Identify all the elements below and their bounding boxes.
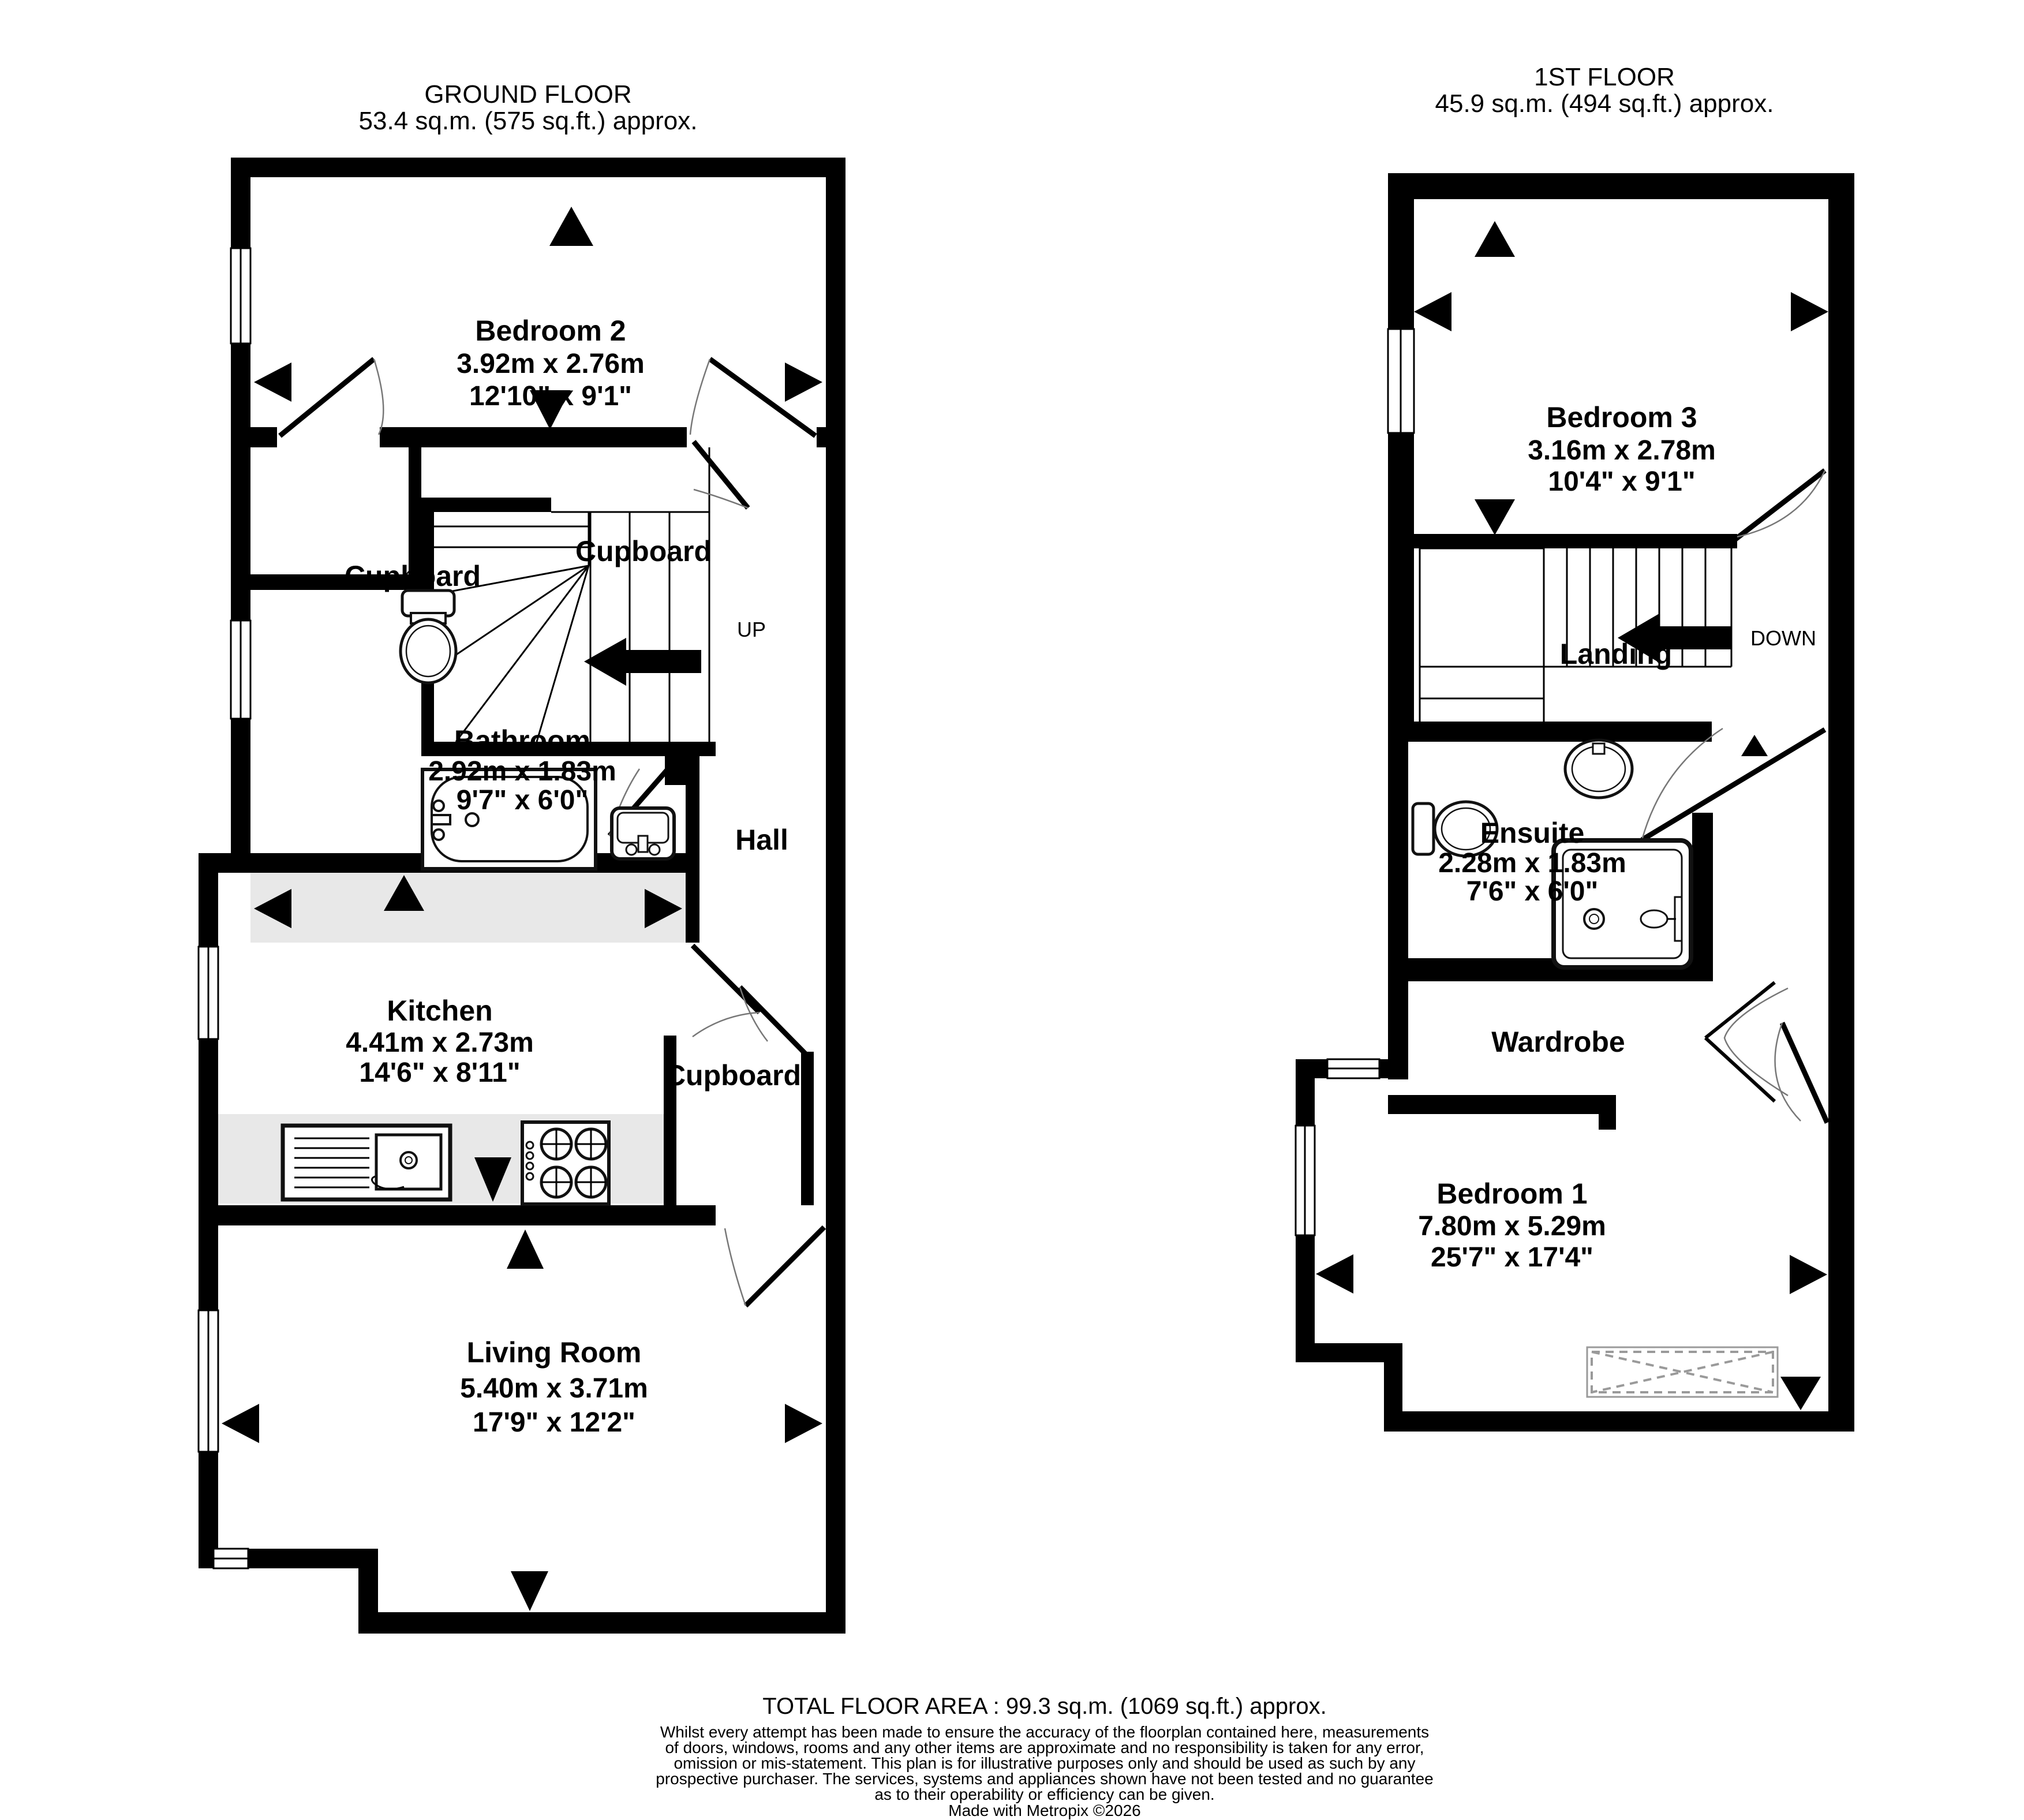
living-room-label: Living Room — [467, 1336, 642, 1369]
dimension-arrow-up — [549, 207, 593, 246]
ground-stairs — [434, 447, 709, 742]
dimension-arrow-right — [785, 1404, 822, 1443]
sink-tap — [1593, 743, 1604, 754]
wall-segment — [1388, 1095, 1599, 1114]
living-room-imperial: 17'9" x 12'2" — [473, 1407, 635, 1438]
door-leaf — [693, 945, 760, 1012]
bedroom3-label: Bedroom 3 — [1546, 401, 1697, 433]
understairs-box — [1420, 667, 1544, 698]
dimension-arrow-left — [1316, 1254, 1353, 1294]
cupboard-left-label: Cupboard — [345, 560, 481, 592]
door-leaf — [1642, 730, 1825, 840]
ensuite-label: Ensuite — [1480, 817, 1585, 849]
bedroom3-imperial: 10'4" x 9'1" — [1548, 466, 1695, 497]
toilet-cistern — [1413, 804, 1434, 854]
wardrobe-door-chevron — [1705, 982, 1775, 1038]
bedroom1-imperial: 25'7" x 17'4" — [1431, 1242, 1593, 1273]
bedroom3-metric: 3.16m x 2.78m — [1528, 435, 1716, 466]
dimension-arrow-down — [1780, 1377, 1821, 1410]
basin-tap-handle — [649, 844, 660, 855]
wall-segment — [231, 427, 277, 447]
bathroom-metric: 2.92m x 1.83m — [428, 756, 616, 787]
bedroom1-metric: 7.80m x 5.29m — [1418, 1211, 1606, 1242]
total-floor-area: TOTAL FLOOR AREA : 99.3 sq.m. (1069 sq.f… — [762, 1694, 1326, 1719]
wall-segment — [1599, 1095, 1616, 1130]
dimension-arrow-up — [507, 1229, 544, 1269]
door-swing-arc — [374, 359, 383, 435]
bedroom1-label: Bedroom 1 — [1436, 1178, 1587, 1210]
ground-floor-title: GROUND FLOOR — [424, 80, 631, 109]
toilet-icon — [401, 591, 456, 683]
hob-knob — [526, 1163, 533, 1169]
wall-segment — [826, 158, 845, 1634]
dimension-arrow-down — [511, 1571, 548, 1611]
dimension-arrow-up — [1475, 221, 1515, 257]
bathroom-label: Bathroom — [454, 724, 590, 757]
wall-segment — [686, 780, 699, 943]
bedroom2-metric: 3.92m x 2.76m — [457, 349, 645, 379]
landing-label: Landing — [1560, 638, 1672, 670]
wall-segment — [358, 1568, 378, 1615]
wall-segment — [199, 1549, 214, 1568]
ground-floor-plan: Bedroom 2 3.92m x 2.76m 12'10" x 9'1" Cu… — [199, 158, 845, 1634]
dimension-arrow-right — [1790, 1255, 1827, 1294]
dimension-arrow-left — [1414, 292, 1451, 331]
hob-knob — [526, 1152, 533, 1159]
hob-icon — [522, 1122, 609, 1204]
wall-segment — [1692, 813, 1713, 981]
understairs-box — [1420, 548, 1544, 667]
bedroom2-label: Bedroom 2 — [475, 315, 626, 347]
door-swing-arc — [690, 359, 710, 435]
wall-segment — [199, 873, 218, 947]
cupboard-lower-label: Cupboard — [665, 1059, 801, 1092]
wall-segment — [1388, 742, 1408, 981]
toilet-bowl-inner — [406, 626, 450, 677]
wall-segment — [1388, 173, 1854, 199]
door-leaf — [740, 987, 806, 1054]
stairs-up-label: UP — [737, 618, 766, 641]
floorplan-page: GROUND FLOOR 53.4 sq.m. (575 sq.ft.) app… — [0, 0, 2024, 1820]
wall-segment — [199, 1205, 716, 1225]
footer: TOTAL FLOOR AREA : 99.3 sq.m. (1069 sq.f… — [656, 1694, 1433, 1819]
hob-knob — [526, 1142, 533, 1149]
shower-drain-inner — [1589, 914, 1599, 924]
wall-segment — [1388, 433, 1414, 742]
wall-segment — [1296, 1059, 1315, 1126]
kitchen-sink-icon — [283, 1126, 450, 1199]
wall-segment — [199, 1452, 218, 1549]
first-floor-title: 1ST FLOOR — [1534, 63, 1675, 91]
metropix-credit: Made with Metropix ©2026 — [948, 1802, 1140, 1819]
wall-segment — [1388, 173, 1414, 329]
first-floor-area: 45.9 sq.m. (494 sq.ft.) approx. — [1435, 89, 1774, 118]
wall-segment — [817, 427, 845, 447]
wall-segment — [380, 427, 687, 447]
wardrobe-door-arc — [1724, 988, 1788, 1096]
first-stairs — [1420, 548, 1731, 723]
stair-winder — [537, 566, 589, 742]
door-leaf — [746, 1227, 824, 1306]
kitchen-imperial: 14'6" x 8'11" — [359, 1057, 520, 1088]
wardrobe-label: Wardrobe — [1491, 1026, 1625, 1058]
hob-knob — [526, 1173, 533, 1180]
bathroom-basin-icon — [612, 808, 674, 859]
dimension-arrow-down — [1475, 499, 1515, 535]
ensuite-sink-icon — [1565, 740, 1632, 798]
wall-segment — [358, 1612, 845, 1634]
shower-head — [1641, 910, 1667, 928]
wall-segment — [1388, 722, 1712, 742]
cupboard-top-label: Cupboard — [575, 535, 712, 567]
wall-segment — [421, 498, 551, 512]
kitchen-label: Kitchen — [387, 995, 492, 1027]
kitchen-upper-floor-strip — [250, 873, 686, 943]
stairs-down-label: DOWN — [1750, 626, 1816, 650]
door-swing-arc — [725, 1228, 746, 1306]
first-floor-plan: Bedroom 3 3.16m x 2.78m 10'4" x 9'1" Lan… — [1296, 173, 1854, 1432]
bath-tap — [433, 829, 444, 840]
living-room-metric: 5.40m x 3.71m — [460, 1373, 648, 1404]
disclaimer-line: as to their operability or efficiency ca… — [874, 1785, 1214, 1803]
kitchen-metric: 4.41m x 2.73m — [346, 1027, 534, 1058]
understairs-box — [1420, 698, 1544, 723]
wall-segment — [801, 1052, 814, 1205]
ensuite-metric: 2.28m x 1.83m — [1438, 848, 1626, 879]
wall-segment — [1384, 1411, 1854, 1432]
wall-segment — [409, 447, 421, 574]
wardrobe-door-chevron — [1705, 1038, 1775, 1101]
basin-tap-handle — [626, 844, 637, 855]
door-leaf — [280, 359, 374, 436]
dimension-arrow-right — [785, 362, 822, 402]
bathroom-imperial: 9'7" x 6'0" — [457, 785, 589, 816]
up-arrow-stem — [626, 650, 701, 673]
door-swing-arc — [693, 1012, 760, 1037]
hall-label: Hall — [735, 824, 788, 856]
wall-segment — [231, 719, 250, 853]
wall-segment — [1828, 173, 1854, 1432]
wall-segment — [199, 1039, 218, 1310]
wall-segment — [1388, 534, 1737, 548]
dimension-arrow-left — [222, 1404, 259, 1443]
dimension-arrow-up — [1741, 735, 1768, 756]
ground-floor-area: 53.4 sq.m. (575 sq.ft.) approx. — [359, 107, 698, 135]
basin-tap — [638, 836, 648, 852]
ensuite-imperial: 7'6" x 6'0" — [1466, 876, 1599, 907]
dashed-box-outline — [1587, 1347, 1778, 1397]
restricted-area-box — [1587, 1347, 1778, 1397]
bath-tap — [433, 801, 444, 811]
first-doors — [1642, 470, 1827, 1123]
wall-segment — [248, 1549, 378, 1568]
sink-drain-inner — [405, 1157, 412, 1164]
wall-segment — [1379, 1059, 1408, 1078]
door-leaf — [1733, 470, 1825, 541]
wall-segment — [231, 158, 845, 177]
dimension-arrow-right — [1791, 292, 1828, 331]
dimension-arrow-left — [254, 362, 291, 402]
bedroom2-imperial: 12'10" x 9'1" — [469, 381, 632, 412]
bath-spout — [432, 815, 450, 824]
wall-segment — [231, 158, 250, 248]
